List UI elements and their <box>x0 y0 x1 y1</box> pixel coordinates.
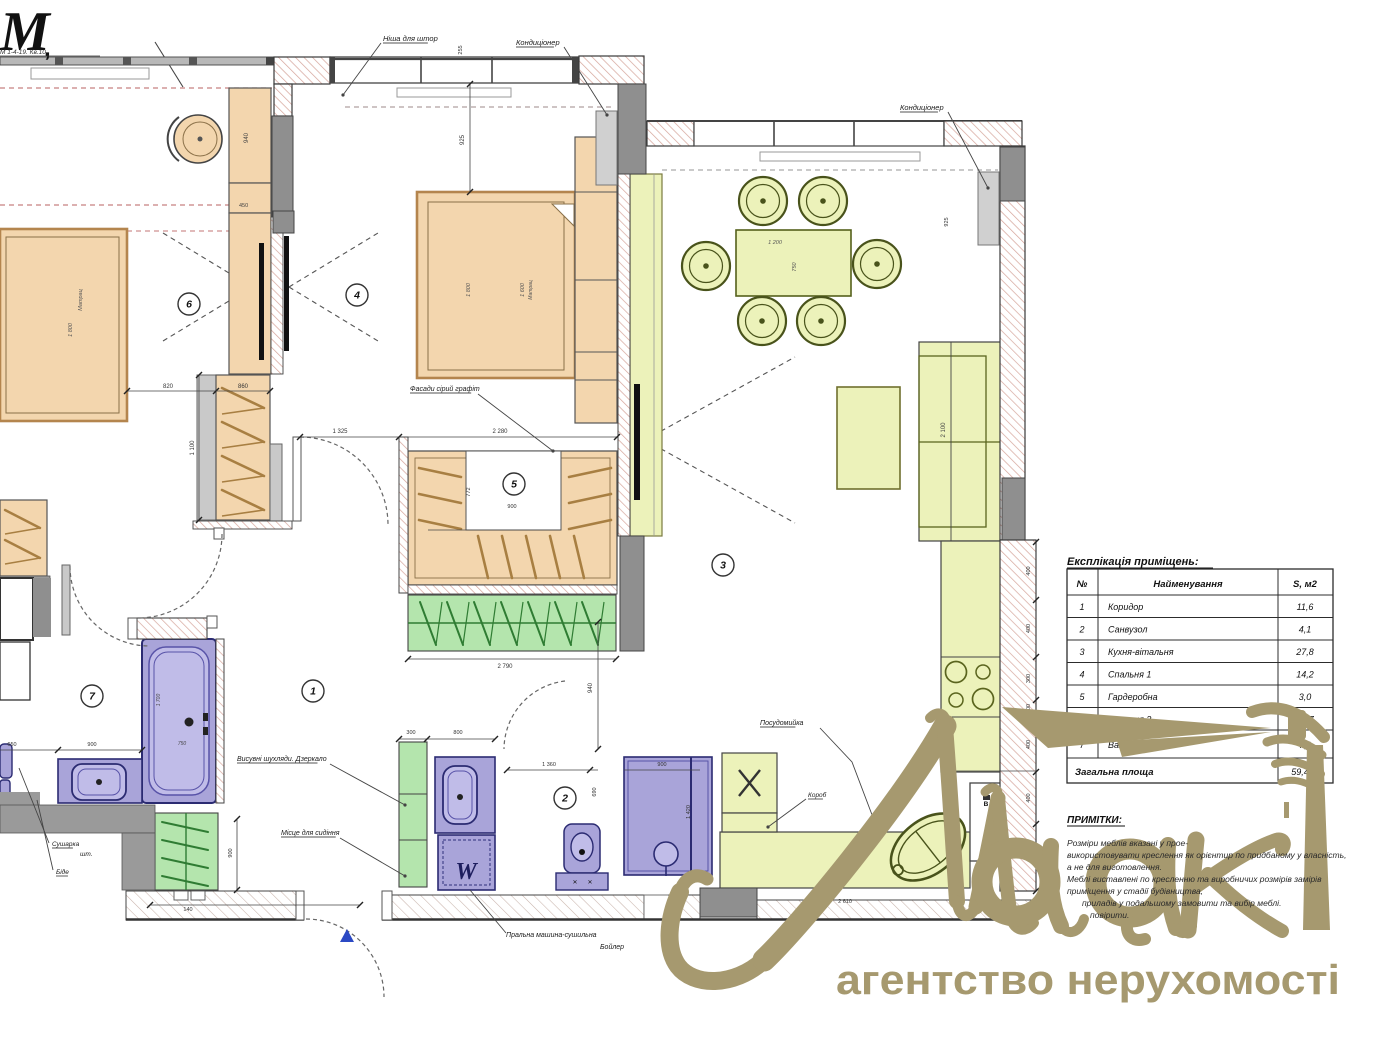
svg-text:900: 900 <box>507 504 516 510</box>
svg-text:Загальна площа: Загальна площа <box>1075 767 1154 778</box>
svg-text:4,1: 4,1 <box>1299 625 1312 635</box>
svg-text:1 325: 1 325 <box>332 429 348 435</box>
svg-text:5: 5 <box>511 479 517 491</box>
svg-text:820: 820 <box>163 384 174 390</box>
svg-text:Найменування: Найменування <box>1153 579 1223 590</box>
svg-text:900: 900 <box>228 848 234 857</box>
svg-text:450: 450 <box>239 203 248 209</box>
svg-text:900: 900 <box>657 762 666 768</box>
svg-text:Матрац: Матрац <box>528 280 534 300</box>
svg-text:400: 400 <box>1026 740 1032 749</box>
svg-text:2: 2 <box>1078 625 1084 635</box>
svg-text:2 280: 2 280 <box>492 429 508 435</box>
svg-text:використовувати креслення як о: використовувати креслення як орієнтир по… <box>1067 850 1346 860</box>
svg-text:1: 1 <box>1079 602 1084 612</box>
svg-text:2 610: 2 610 <box>838 899 852 905</box>
svg-text:400: 400 <box>1026 624 1032 633</box>
svg-text:1 600: 1 600 <box>520 282 526 297</box>
svg-text:6: 6 <box>186 299 192 311</box>
svg-text:S, м2: S, м2 <box>1293 579 1318 590</box>
svg-text:772: 772 <box>466 487 472 496</box>
svg-text:ПРИМІТКИ:: ПРИМІТКИ: <box>1067 815 1122 826</box>
svg-text:Гардеробна: Гардеробна <box>1108 692 1158 702</box>
svg-text:1 420: 1 420 <box>686 805 692 819</box>
svg-text:1 700: 1 700 <box>156 694 162 707</box>
svg-text:925: 925 <box>460 134 466 145</box>
svg-text:приміщення у стадії будівництв: приміщення у стадії будівництва, <box>1067 886 1203 896</box>
svg-text:800: 800 <box>453 730 462 736</box>
svg-text:900: 900 <box>87 742 96 748</box>
svg-text:Спальня 1: Спальня 1 <box>1108 670 1151 680</box>
svg-text:Короб: Короб <box>808 791 827 799</box>
svg-text:1 800: 1 800 <box>68 322 74 337</box>
svg-text:Експлікація приміщень:: Експлікація приміщень: <box>1067 556 1199 568</box>
svg-text:Бойлер: Бойлер <box>600 943 624 951</box>
svg-text:3: 3 <box>1079 647 1084 657</box>
svg-text:✕: ✕ <box>572 880 577 886</box>
svg-text:а не для виготовлення.: а не для виготовлення. <box>1067 862 1162 872</box>
svg-text:27,8: 27,8 <box>1295 647 1314 657</box>
svg-text:3,0: 3,0 <box>1299 692 1312 702</box>
svg-text:Місце для сидіння: Місце для сидіння <box>281 829 340 837</box>
svg-text:Розміри меблів вказані у прое-: Розміри меблів вказані у прое- <box>1067 838 1188 848</box>
svg-text:1 800: 1 800 <box>466 282 472 297</box>
svg-text:650: 650 <box>7 742 16 748</box>
svg-text:✕: ✕ <box>587 880 592 886</box>
svg-text:860: 860 <box>238 384 249 390</box>
svg-text:300: 300 <box>1026 674 1032 683</box>
svg-text:2: 2 <box>561 793 568 805</box>
svg-text:750: 750 <box>178 741 187 747</box>
svg-text:шт.: шт. <box>80 851 93 858</box>
svg-text:Коридор: Коридор <box>1108 602 1143 612</box>
svg-text:Фасади сірий графіт: Фасади сірий графіт <box>410 385 480 393</box>
svg-text:Пральна машина-сушильна: Пральна машина-сушильна <box>506 932 597 939</box>
svg-text:М 1-4-19. Кв.10: М 1-4-19. Кв.10 <box>0 49 46 56</box>
svg-text:№: № <box>1077 579 1088 590</box>
svg-text:2 100: 2 100 <box>941 422 947 438</box>
svg-text:11,6: 11,6 <box>1297 602 1314 612</box>
svg-text:Меблі виставлені по кресленню: Меблі виставлені по кресленню та виробни… <box>1067 874 1322 884</box>
svg-text:Кондиціонер: Кондиціонер <box>516 38 560 47</box>
svg-text:Посудомийка: Посудомийка <box>760 719 804 727</box>
svg-text:300: 300 <box>406 730 415 736</box>
svg-text:В: В <box>984 801 989 808</box>
svg-text:Біде: Біде <box>56 868 69 876</box>
svg-text:940: 940 <box>588 682 594 693</box>
svg-text:1 100: 1 100 <box>190 440 196 456</box>
svg-text:приладів у подальшому замовити: приладів у подальшому замовити та вибір … <box>1082 898 1281 908</box>
svg-text:1: 1 <box>310 686 316 698</box>
svg-text:Висувні шухляди. Дзеркало: Висувні шухляди. Дзеркало <box>237 755 327 763</box>
svg-text:Кондиціонер: Кондиціонер <box>900 103 944 112</box>
svg-text:2 790: 2 790 <box>497 664 513 670</box>
svg-text:940: 940 <box>244 132 250 143</box>
svg-text:400: 400 <box>1026 793 1032 802</box>
svg-text:агентство нерухомості: агентство нерухомості <box>836 956 1340 1003</box>
svg-text:1 360: 1 360 <box>542 762 556 768</box>
svg-text:255: 255 <box>458 45 464 54</box>
svg-text:Санвузол: Санвузол <box>1108 625 1147 635</box>
svg-text:690: 690 <box>592 787 598 796</box>
svg-text:3: 3 <box>720 560 726 572</box>
svg-text:W: W <box>455 859 478 885</box>
svg-text:повірити.: повірити. <box>1090 910 1129 920</box>
svg-text:4: 4 <box>353 290 360 302</box>
svg-text:1 200: 1 200 <box>768 240 783 246</box>
svg-text:750: 750 <box>792 261 798 271</box>
svg-text:Кухня-вітальня: Кухня-вітальня <box>1108 647 1174 657</box>
svg-text:Матрац: Матрац <box>78 289 84 310</box>
svg-text:Ніша для штор: Ніша для штор <box>383 34 438 43</box>
svg-text:4: 4 <box>1079 670 1084 680</box>
svg-text:925: 925 <box>944 217 950 226</box>
svg-text:400: 400 <box>1026 566 1032 575</box>
svg-text:Сушарка: Сушарка <box>52 841 80 848</box>
svg-text:140: 140 <box>183 907 192 913</box>
svg-text:14,2: 14,2 <box>1296 670 1314 680</box>
